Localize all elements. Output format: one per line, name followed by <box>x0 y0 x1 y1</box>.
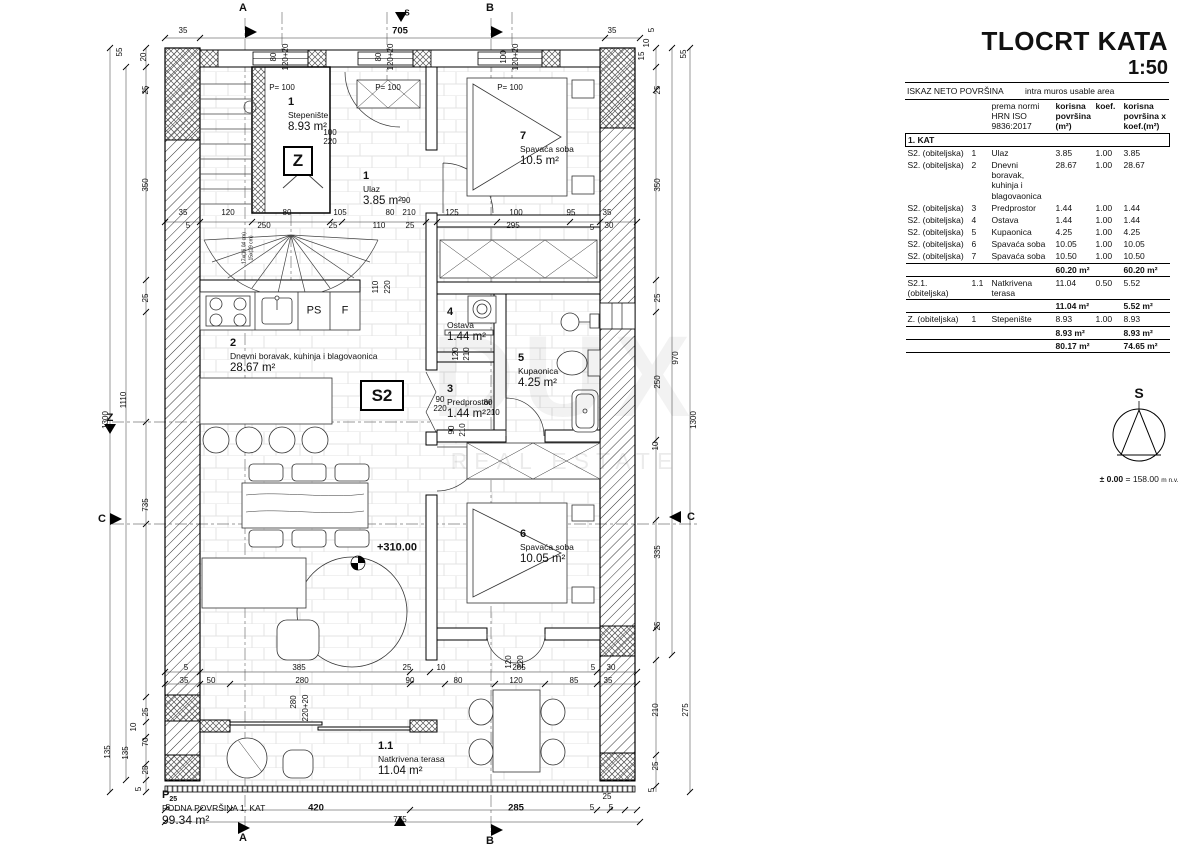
table-row: Z. (obiteljska)1Stepenište8.931.008.93 <box>906 313 1170 326</box>
section-flag-Z <box>104 424 116 434</box>
dining-table <box>242 483 368 528</box>
section-flag-A-top <box>245 26 257 38</box>
floor-plan-area: DUX REAL ESTATE 357053580120+2080120+201… <box>0 0 720 849</box>
kitchen-island <box>200 378 332 424</box>
bar-stool-icon <box>236 427 262 453</box>
gross-area-value: 99.34 m² <box>162 814 265 828</box>
table-subtitle: intra muros usable area <box>1025 86 1167 96</box>
watermark-text: REAL ESTATE <box>420 448 710 475</box>
section-flag-C-left <box>110 513 122 525</box>
col-header-result: korisna površina x koef.(m²) <box>1122 100 1170 133</box>
chair-icon <box>469 739 493 765</box>
title-block: TLOCRT KATA 1:50 <box>982 26 1169 80</box>
col-header-norm: prema normi HRN ISO 9836:2017 <box>990 100 1054 133</box>
table-row: S2.1. (obiteljska)1.1Natkrivena terasa11… <box>906 276 1170 299</box>
table-title: ISKAZ NETO POVRŠINA <box>907 86 1025 96</box>
north-label: S <box>1095 385 1183 401</box>
table-subtotal-row: 60.20 m²60.20 m² <box>906 263 1170 276</box>
col-header-koef: koef. <box>1094 100 1122 133</box>
bar-stool-icon <box>302 427 328 453</box>
elevation-marker <box>351 556 365 570</box>
benchmark-triangle <box>395 12 407 22</box>
elevation-reference: ± 0.00 = 158.00 m n.v. <box>1095 474 1183 484</box>
section-flag-B-top <box>491 26 503 38</box>
dining-set <box>242 464 369 547</box>
table-section-label: 1. KAT <box>906 133 1170 146</box>
armchair-icon <box>227 738 267 778</box>
floor-plan-sheet: DUX REAL ESTATE 357053580120+2080120+201… <box>0 0 1200 849</box>
table-row: S2. (obiteljska)3Predprostor1.441.001.44 <box>906 202 1170 214</box>
col-header-area: korisna površina (m²) <box>1054 100 1094 133</box>
table-subtotal-row: 11.04 m²5.52 m² <box>906 300 1170 313</box>
table-row: S2. (obiteljska)2Dnevni boravak, kuhinja… <box>906 159 1170 202</box>
table-subtotal-row: 8.93 m²8.93 m² <box>906 326 1170 339</box>
bed-icon <box>467 78 567 196</box>
sofa <box>202 558 306 608</box>
section-flag-C-right <box>669 511 681 523</box>
hall-closet <box>440 240 597 278</box>
dim-arrow-775 <box>394 816 406 826</box>
unit-label-s2: S2 <box>360 380 404 411</box>
table-row: S2. (obiteljska)6Spavaća soba10.051.0010… <box>906 238 1170 250</box>
drawing-title: TLOCRT KATA <box>982 26 1169 57</box>
side-table <box>283 750 313 778</box>
watermark-logo: DUX <box>420 320 710 435</box>
drawing-scale: 1:50 <box>982 57 1169 80</box>
table-row: S2. (obiteljska)7Spavaća soba10.501.0010… <box>906 250 1170 263</box>
building-label-z: Z <box>283 146 313 176</box>
area-table: ISKAZ NETO POVRŠINA intra muros usable a… <box>905 82 1169 353</box>
bed-icon <box>467 503 567 603</box>
table-row: S2. (obiteljska)1Ulaz3.851.003.85 <box>906 146 1170 159</box>
north-arrow-icon <box>1095 401 1183 465</box>
section-flag-B-bottom <box>491 824 503 836</box>
chair-icon <box>469 699 493 725</box>
terrace-table <box>493 690 540 772</box>
table-row: S2. (obiteljska)5Kupaonica4.251.004.25 <box>906 226 1170 238</box>
bar-stool-icon <box>269 427 295 453</box>
chair-icon <box>541 739 565 765</box>
chair-icon <box>541 699 565 725</box>
north-arrow-block: S ± 0.00 = 158.00 m n.v. <box>1095 385 1183 484</box>
pouf <box>277 620 319 660</box>
table-total-row: 80.17 m²74.65 m² <box>906 339 1170 352</box>
table-row: S2. (obiteljska)4Ostava1.441.001.44 <box>906 214 1170 226</box>
gross-area-note: P25 PODNA POVRŠINA 1. KAT 99.34 m² <box>162 789 265 828</box>
bar-stool-icon <box>203 427 229 453</box>
entry-closet <box>357 80 420 108</box>
